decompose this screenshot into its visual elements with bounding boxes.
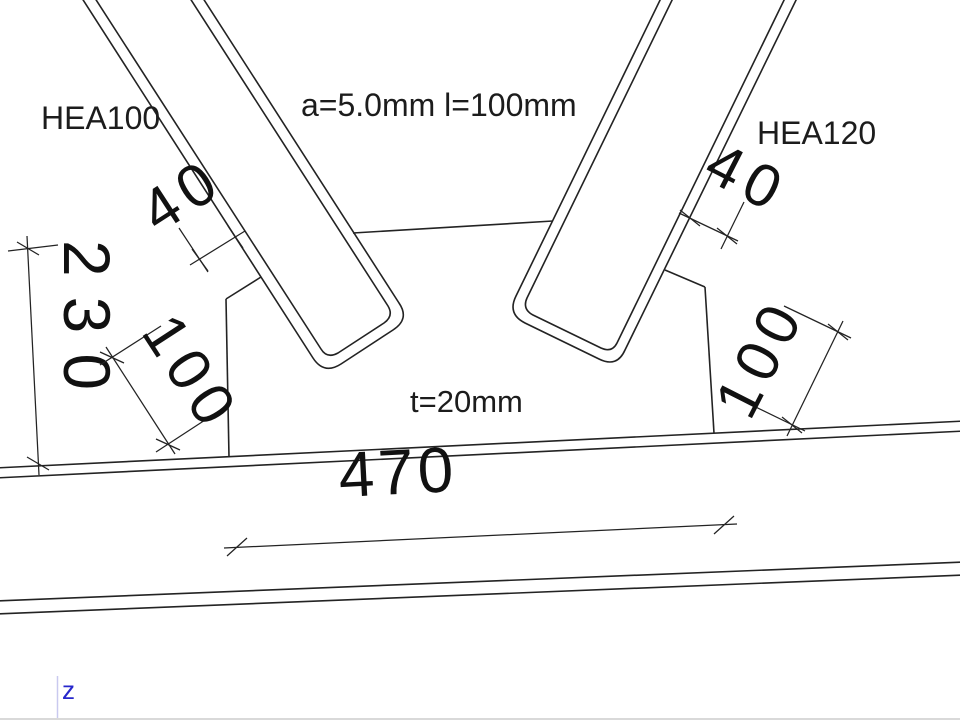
dim-line [679,213,738,241]
tick-mark [828,324,848,340]
label-member-left: HEA100 [41,100,160,136]
tick-mark [192,249,208,271]
plate-right-corner-edge [665,270,705,287]
label-weld-spec: a=5.0mm l=100mm [301,87,577,123]
tick-mark [156,439,180,450]
axis-indicator: z [58,675,76,720]
tick-mark [717,228,737,244]
dimension-100-right: 100 [702,287,851,436]
dim-100-left-value: 100 [129,303,253,444]
dim-40-left-value: 40 [129,144,235,245]
dim-470-value: 470 [337,433,459,511]
label-member-right: HEA120 [757,115,876,151]
dim-line [224,524,737,548]
member-left-inner-outline [91,0,390,355]
cad-drawing-viewport[interactable]: 40 40 230 100 [0,0,960,720]
gusset-plate [226,221,714,457]
diagonal-member-left [78,0,403,368]
plate-left-corner-edge [226,277,261,299]
member-left-outer-outline [78,0,403,368]
chord-top-outer-edge [0,421,960,468]
tick-mark [680,210,700,226]
chord-top-inner-edge [0,431,960,478]
plate-right-edge [705,287,714,433]
label-plate-thickness: t=20mm [410,384,523,419]
z-axis-label: z [62,675,75,705]
tick-mark [228,226,243,248]
dimension-40-left: 40 [129,144,245,272]
drawing-canvas[interactable]: 40 40 230 100 [0,0,960,720]
tick-mark [782,417,802,433]
bottom-chord [0,421,960,614]
dim-230-value: 230 [50,240,124,410]
plate-top-edge [353,221,553,233]
dimension-470: 470 [224,433,737,556]
dim-line [27,236,39,475]
dim-100-right-value: 100 [702,287,818,428]
dim-line [190,231,245,265]
